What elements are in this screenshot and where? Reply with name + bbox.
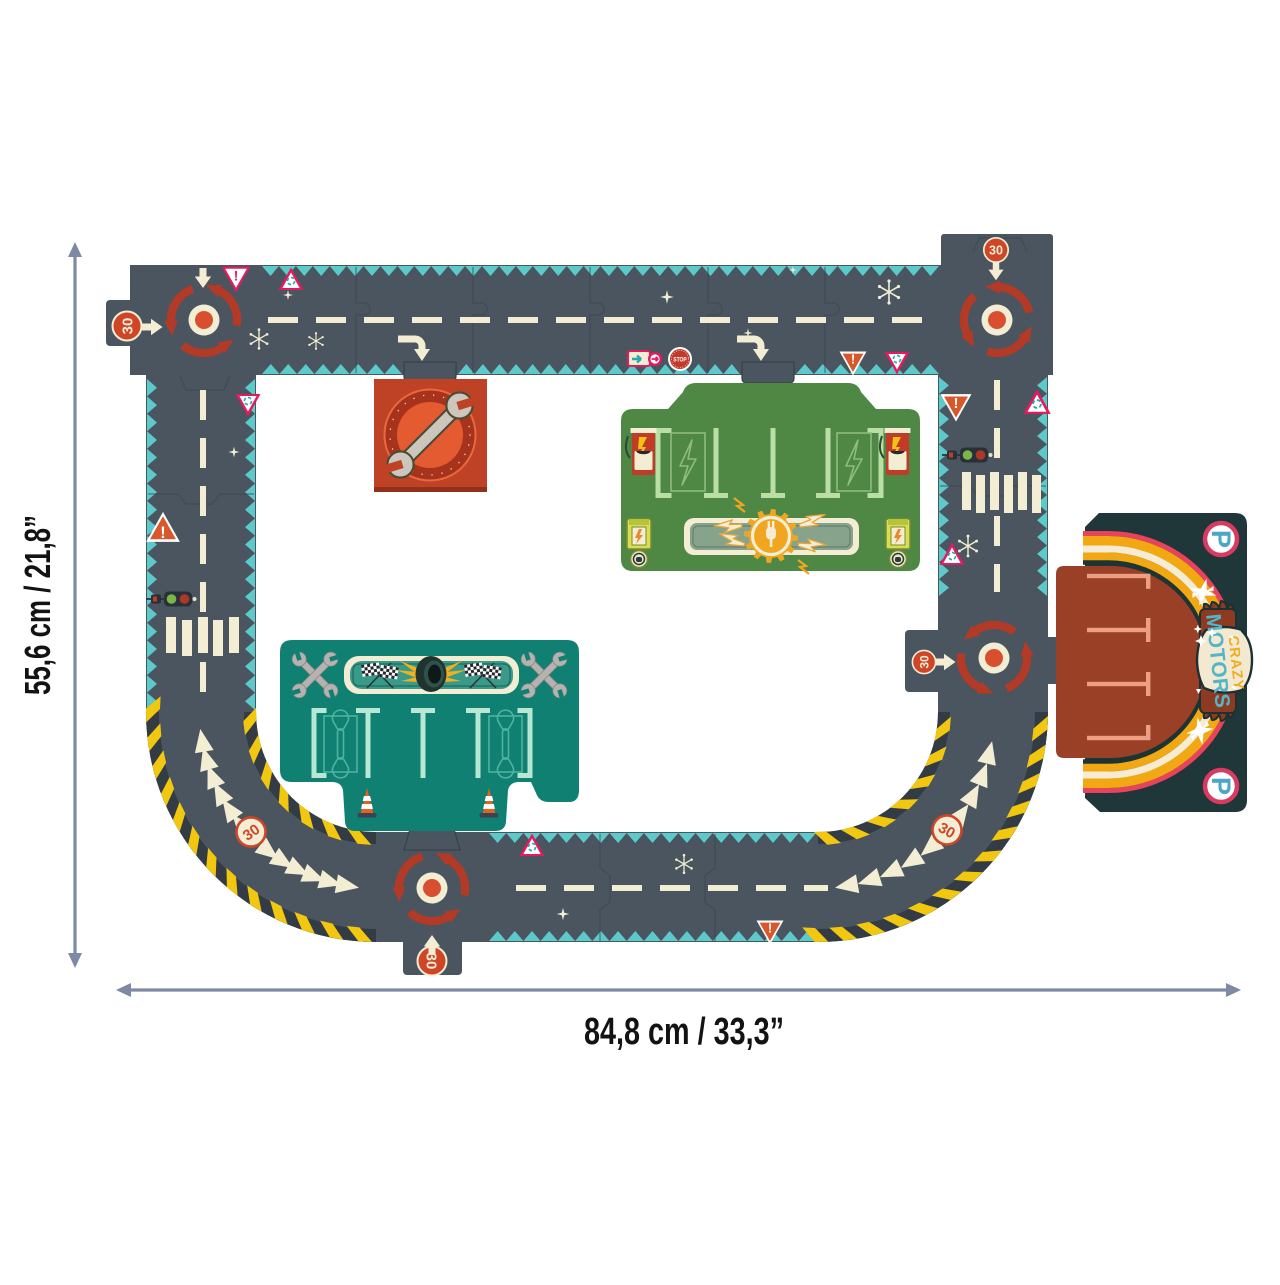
- svg-text:P: P: [1206, 777, 1236, 795]
- svg-text:84,8 cm / 33,3”: 84,8 cm / 33,3”: [584, 1011, 784, 1053]
- svg-text:55,6 cm / 21,8”: 55,6 cm / 21,8”: [17, 515, 58, 695]
- svg-text:P: P: [1206, 530, 1236, 548]
